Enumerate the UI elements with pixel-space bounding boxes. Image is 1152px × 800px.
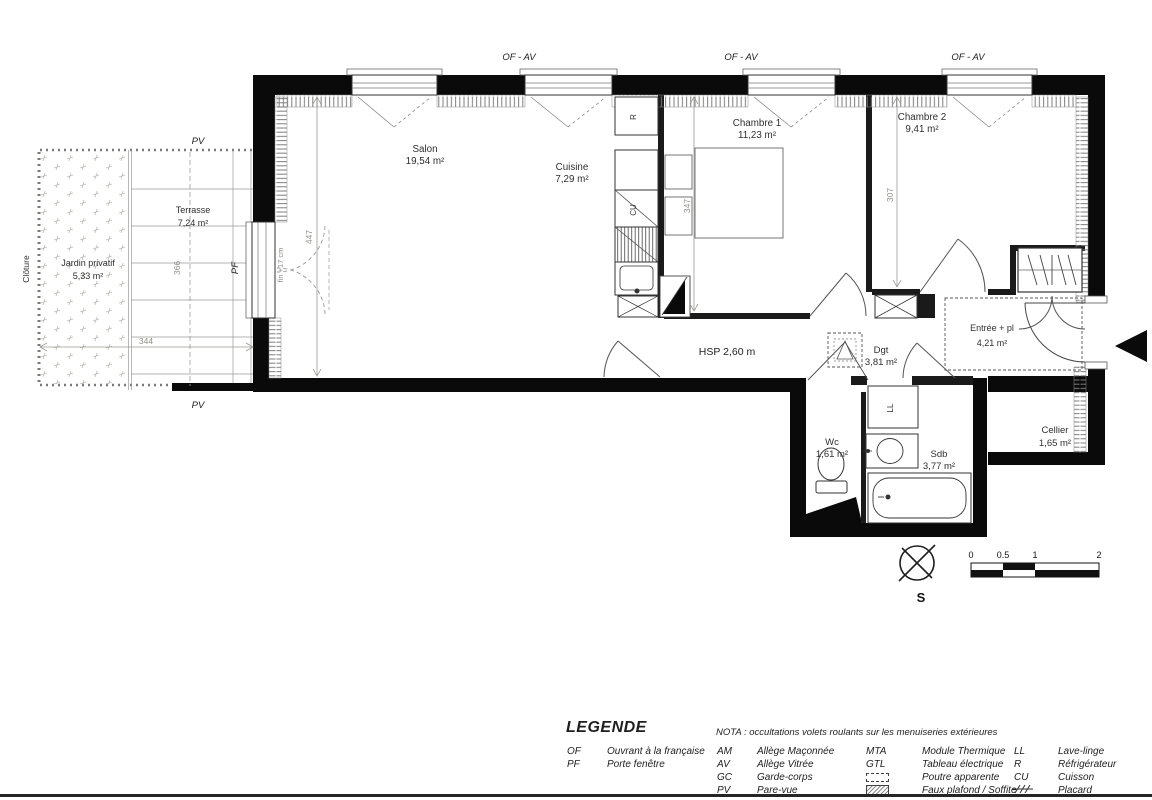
svg-text:3,81 m²: 3,81 m² <box>865 357 897 368</box>
svg-text:11,23 m²: 11,23 m² <box>738 130 777 141</box>
svg-text:Chambre 1: Chambre 1 <box>733 118 781 129</box>
hatch-band <box>835 95 947 107</box>
wall-cellar-south <box>988 452 1105 465</box>
svg-text:19,54 m²: 19,54 m² <box>406 156 445 167</box>
hob-label: CU <box>629 204 638 216</box>
room-label-sdb: Sdb 3,77 m² <box>923 449 955 472</box>
pf-label: PF <box>230 261 241 274</box>
kitchen-crossed-box <box>618 296 658 317</box>
svg-text:7,29 m²: 7,29 m² <box>555 174 589 185</box>
soffit-hatch-bands <box>277 95 1076 107</box>
dashed-box-symbol <box>866 773 889 782</box>
legend-value: Ouvrant à la française <box>607 746 705 757</box>
window-label-2: OF - AV <box>724 52 759 63</box>
kitchen-sink-unit <box>615 262 658 295</box>
compass-south-label: S <box>917 590 926 605</box>
compass: S <box>899 545 935 605</box>
entrance-arrow-icon <box>1115 330 1147 362</box>
room-label-cuisine: Cuisine 7,29 m² <box>555 162 589 185</box>
legend-key: CU <box>1014 772 1028 783</box>
private-garden <box>39 150 253 386</box>
scale-0: 0 <box>968 550 973 560</box>
dim-366: 366 <box>172 261 182 275</box>
svg-text:4,21 m²: 4,21 m² <box>977 338 1008 348</box>
kitchen-corner-door <box>660 276 690 317</box>
legend-key: OF <box>567 746 581 757</box>
scale-05: 0.5 <box>997 550 1010 560</box>
hatch-band <box>1074 367 1086 452</box>
legend-value: Module Thermique <box>922 746 1005 757</box>
window-label-1: OF - AV <box>502 52 537 63</box>
svg-text:Jardin privatif: Jardin privatif <box>61 258 115 268</box>
svg-text:5,33 m²: 5,33 m² <box>73 271 104 281</box>
legend-value: Allège Vitrée <box>757 759 814 770</box>
svg-text:1,61 m²: 1,61 m² <box>816 449 848 460</box>
svg-text:Terrasse: Terrasse <box>176 205 211 215</box>
floor-plan-sheet: 447 347 307 366 344 fin +17 cm OF - AV O… <box>0 0 1152 800</box>
legend-key: LL <box>1014 746 1025 757</box>
fence-label: Clôture <box>21 255 31 283</box>
wall-closet-west <box>1010 245 1016 295</box>
svg-text:Cellier: Cellier <box>1042 425 1069 436</box>
pv-label-top: PV <box>192 136 206 147</box>
svg-text:Entrée + pl: Entrée + pl <box>970 323 1014 333</box>
svg-text:9,41 m²: 9,41 m² <box>905 124 939 135</box>
wardrobe-closet <box>1018 248 1082 292</box>
svg-text:3,77 m²: 3,77 m² <box>923 461 955 472</box>
legend-value: Tableau électrique <box>922 759 1003 770</box>
legend-value: Garde-corps <box>757 772 813 783</box>
room-label-salon: Salon 19,54 m² <box>406 144 445 167</box>
svg-text:Chambre 2: Chambre 2 <box>898 112 946 123</box>
wall-south-living <box>255 378 806 392</box>
sheet-bottom-border <box>0 794 1152 797</box>
terrace-french-door <box>246 222 329 318</box>
wall-wc-west <box>790 390 806 537</box>
room-label-wc: Wc 1,61 m² <box>816 437 848 460</box>
entrance-door <box>1025 296 1107 369</box>
fridge-label: R <box>629 114 638 120</box>
door-bedroom1 <box>810 273 866 316</box>
legend-value: Lave-linge <box>1058 746 1104 757</box>
svg-text:Dgt: Dgt <box>874 345 889 356</box>
hatch-band <box>275 97 287 222</box>
door-hall-entry <box>903 343 955 378</box>
kitchen-counter <box>615 150 658 190</box>
terrace-left-edge <box>129 150 132 390</box>
washer-label: LL <box>886 403 895 412</box>
legend-key: MTA <box>866 746 886 757</box>
wall-bath-south <box>790 523 987 537</box>
washbasin <box>863 434 918 468</box>
legend-value: Réfrigérateur <box>1058 759 1116 770</box>
svg-text:1,65 m²: 1,65 m² <box>1039 438 1071 449</box>
wall-wc-bath <box>861 392 866 523</box>
kitchen-hatched-unit <box>615 227 658 262</box>
room-label-dgt: Dgt 3,81 m² <box>865 345 897 368</box>
legend-value: Allège Maçonnée <box>757 746 834 757</box>
dim-344: 344 <box>139 336 153 346</box>
legend-value: Porte fenêtre <box>607 759 665 770</box>
ceiling-height-label: HSP 2,60 m <box>699 346 756 358</box>
svg-text:Wc: Wc <box>825 437 839 448</box>
pv-label-bottom: PV <box>192 400 206 411</box>
svg-text:Cuisine: Cuisine <box>556 162 589 173</box>
entry-dashed-zone <box>945 298 1082 370</box>
legend-value: Poutre apparente <box>922 772 999 783</box>
hatch-band <box>269 318 281 378</box>
wall-cellar-north <box>988 376 1105 392</box>
wall-hall-bath-b <box>912 376 973 385</box>
room-label-cellier: Cellier 1,65 m² <box>1039 425 1071 449</box>
room-label-entree: Entrée + pl 4,21 m² <box>970 323 1014 348</box>
legend-key: R <box>1014 759 1021 770</box>
nightstand <box>665 155 692 189</box>
legend-title: LEGENDE <box>566 719 647 737</box>
terrace-screen-wall <box>172 383 257 391</box>
floor-level-note: fin +17 cm <box>276 248 285 283</box>
legend-key: AV <box>717 759 730 770</box>
bed <box>695 148 783 238</box>
wall-bath-east <box>973 378 987 537</box>
door-bedroom2 <box>920 239 985 292</box>
bedroom1-furniture <box>665 148 783 238</box>
room-label-terrasse: Terrasse 7,24 m² <box>176 205 211 228</box>
legend-key: GTL <box>866 759 885 770</box>
floor-plan-svg: 447 347 307 366 344 fin +17 cm OF - AV O… <box>0 0 1152 800</box>
svg-text:Sdb: Sdb <box>931 449 948 460</box>
dim-447: 447 <box>304 230 314 244</box>
wc-chamfer-wall <box>806 497 862 523</box>
legend-value: Cuisson <box>1058 772 1094 783</box>
wall-hall-bath-a <box>851 376 867 385</box>
scale-bar: 0 0.5 1 2 <box>968 550 1101 577</box>
door-living-hall <box>604 341 660 377</box>
scale-1: 1 <box>1032 550 1037 560</box>
window-of-av-2 <box>520 69 617 127</box>
window-label-3: OF - AV <box>951 52 986 63</box>
wall-bedroom2-south-a <box>872 289 920 295</box>
wall-bedroom1-bedroom2 <box>866 95 872 292</box>
legend-key: AM <box>717 746 732 757</box>
room-label-chambre2: Chambre 2 9,41 m² <box>898 112 946 135</box>
scale-2: 2 <box>1096 550 1101 560</box>
garden-stipple-area <box>41 152 127 384</box>
duct-box <box>875 295 917 318</box>
dim-307: 307 <box>885 188 895 202</box>
wall-west-upper <box>253 75 275 222</box>
soffit-hatch-bands-vertical <box>269 97 1088 452</box>
terrace-deck-lines <box>131 189 253 374</box>
legend-nota: NOTA : occultations volets roulants sur … <box>716 727 997 738</box>
bathtub <box>868 473 971 523</box>
legend-key: GC <box>717 772 732 783</box>
window-of-av-1 <box>347 69 442 127</box>
wall-east-upper <box>1088 75 1105 302</box>
wall-hall-entry-stub <box>917 294 935 318</box>
legend-key: PF <box>567 759 580 770</box>
hatch-band <box>1032 95 1076 107</box>
svg-text:Salon: Salon <box>412 144 437 155</box>
dim-347: 347 <box>682 199 692 213</box>
svg-text:7,24 m²: 7,24 m² <box>178 218 209 228</box>
room-label-chambre1: Chambre 1 11,23 m² <box>733 118 781 141</box>
hatch-band <box>437 95 525 107</box>
window-of-av-4 <box>942 69 1037 127</box>
wall-bedroom2-south-b <box>988 289 1012 295</box>
